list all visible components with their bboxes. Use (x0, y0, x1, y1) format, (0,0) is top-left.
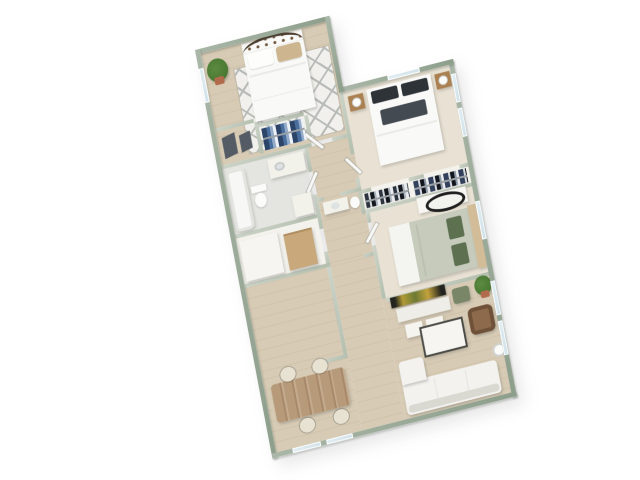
bed3-pillow-green-2 (451, 242, 470, 267)
sink-icon (274, 161, 286, 172)
bath2-sink-icon (331, 201, 341, 210)
floor-plan-image (0, 0, 640, 480)
bed2-pillow-dark-1 (370, 85, 399, 104)
bed2-throw-dark (380, 99, 428, 126)
closet-rod-icon (263, 128, 305, 140)
apartment-unit (195, 0, 517, 458)
bed3-pillow-green-1 (446, 215, 465, 240)
bed2-pillow-dark-2 (401, 77, 430, 96)
lamp-icon-left (352, 98, 361, 108)
lamp-icon-right (439, 76, 448, 86)
bed2 (366, 74, 444, 166)
